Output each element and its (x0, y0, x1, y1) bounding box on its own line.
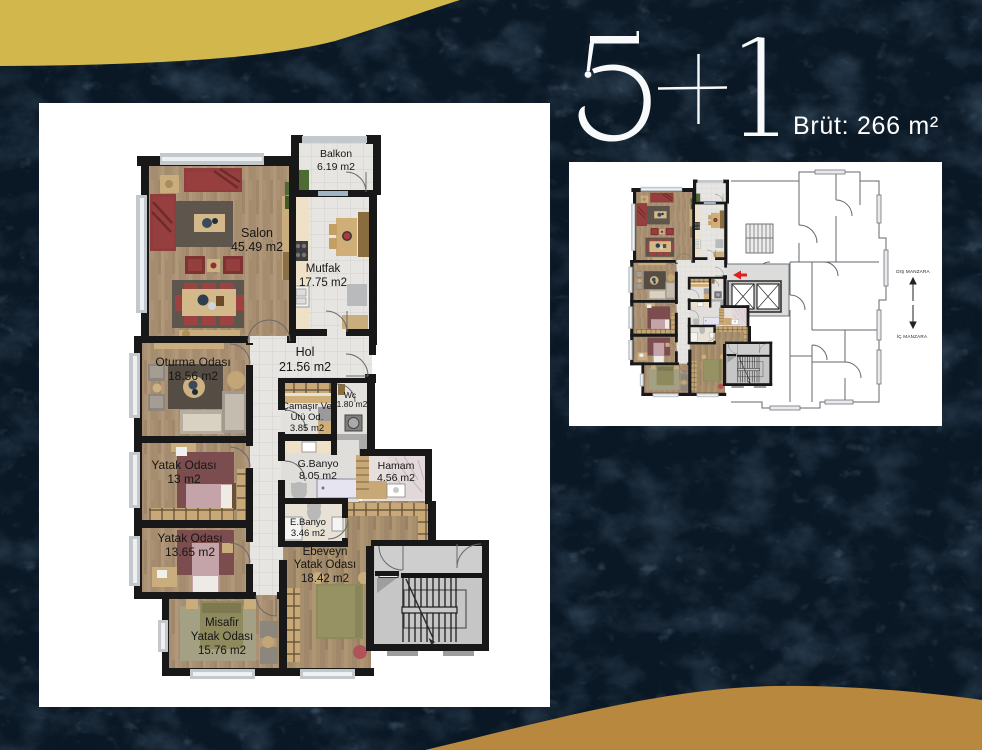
svg-text:Hamam: Hamam (378, 460, 415, 472)
svg-text:Oturma Odası: Oturma Odası (155, 355, 230, 369)
svg-text:Brüt: 266 m²: Brüt: 266 m² (793, 112, 939, 140)
svg-text:3.85 m2: 3.85 m2 (290, 423, 324, 434)
svg-text:Mutfak: Mutfak (306, 263, 341, 275)
svg-text:8.05 m2: 8.05 m2 (299, 470, 337, 482)
svg-text:Yatak Odası: Yatak Odası (191, 631, 253, 643)
svg-text:Ebeveyn: Ebeveyn (303, 546, 348, 558)
svg-text:Yatak Odası: Yatak Odası (151, 458, 216, 472)
svg-text:Yatak Odası: Yatak Odası (157, 531, 222, 545)
svg-text:6.19 m2: 6.19 m2 (317, 161, 355, 173)
svg-text:Hol: Hol (296, 345, 315, 359)
svg-text:15.76 m2: 15.76 m2 (198, 645, 246, 657)
svg-text:E.Banyo: E.Banyo (290, 517, 326, 528)
svg-text:Misafir: Misafir (205, 617, 239, 629)
svg-text:DIŞ MANZARA: DIŞ MANZARA (896, 269, 930, 274)
svg-text:Balkon: Balkon (320, 148, 352, 160)
svg-text:45.49 m2: 45.49 m2 (231, 240, 283, 254)
svg-text:Yatak Odası: Yatak Odası (294, 559, 356, 571)
svg-text:17.75 m2: 17.75 m2 (299, 277, 347, 289)
svg-text:3.46 m2: 3.46 m2 (291, 528, 325, 539)
svg-text:Ütü Od.: Ütü Od. (291, 412, 324, 423)
svg-text:Çamaşır Ve: Çamaşır Ve (282, 401, 332, 412)
svg-text:13 m2: 13 m2 (167, 472, 201, 486)
svg-text:18.56 m2: 18.56 m2 (168, 369, 218, 383)
svg-text:G.Banyo: G.Banyo (298, 458, 339, 470)
svg-text:13.65 m2: 13.65 m2 (165, 545, 215, 559)
svg-text:İÇ MANZARA: İÇ MANZARA (897, 333, 928, 339)
svg-text:Salon: Salon (241, 226, 273, 240)
svg-text:18.42 m2: 18.42 m2 (301, 573, 349, 585)
svg-text:4.56 m2: 4.56 m2 (377, 472, 415, 484)
svg-text:1.80 m2: 1.80 m2 (337, 399, 368, 409)
svg-text:21.56 m2: 21.56 m2 (279, 360, 331, 374)
